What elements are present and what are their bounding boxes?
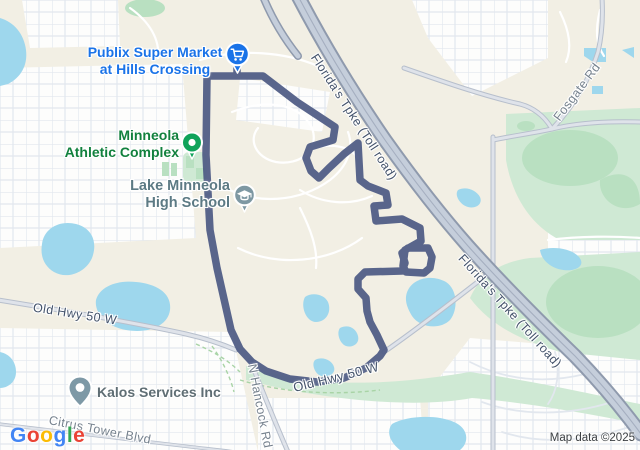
athletic-label-line1: Minneola xyxy=(40,127,179,144)
kalos-pin[interactable] xyxy=(66,374,94,413)
google-logo-letter: o xyxy=(40,424,53,447)
athletic-label-line2: Athletic Complex xyxy=(40,144,179,161)
google-logo-letter: o xyxy=(27,424,40,447)
green-dot-icon xyxy=(180,131,204,160)
publix-label-line2: at Hills Crossing xyxy=(82,61,228,78)
publix-pin[interactable] xyxy=(224,41,251,79)
google-logo[interactable]: Google xyxy=(10,424,85,448)
shopping-cart-icon xyxy=(224,41,251,74)
kalos-label[interactable]: Kalos Services Inc xyxy=(97,384,221,401)
google-logo-letter: g xyxy=(54,424,67,447)
athletic-complex-pin[interactable] xyxy=(180,131,204,165)
map-viewport[interactable]: Publix Super Market at Hills Crossing Mi… xyxy=(0,0,640,450)
school-label-line2: High School xyxy=(88,195,230,212)
google-logo-letter: G xyxy=(10,424,27,447)
athletic-complex-label[interactable]: Minneola Athletic Complex xyxy=(40,127,179,161)
map-attribution: Map data ©2025 xyxy=(550,432,635,444)
high-school-pin[interactable] xyxy=(232,183,257,218)
school-label-line1: Lake Minneola xyxy=(88,178,230,195)
place-pin-icon xyxy=(66,374,94,408)
high-school-label[interactable]: Lake Minneola High School xyxy=(88,178,230,212)
graduation-cap-icon xyxy=(232,183,257,213)
google-logo-letter: e xyxy=(73,424,85,447)
publix-label[interactable]: Publix Super Market at Hills Crossing xyxy=(82,44,228,78)
publix-label-line1: Publix Super Market xyxy=(82,44,228,61)
